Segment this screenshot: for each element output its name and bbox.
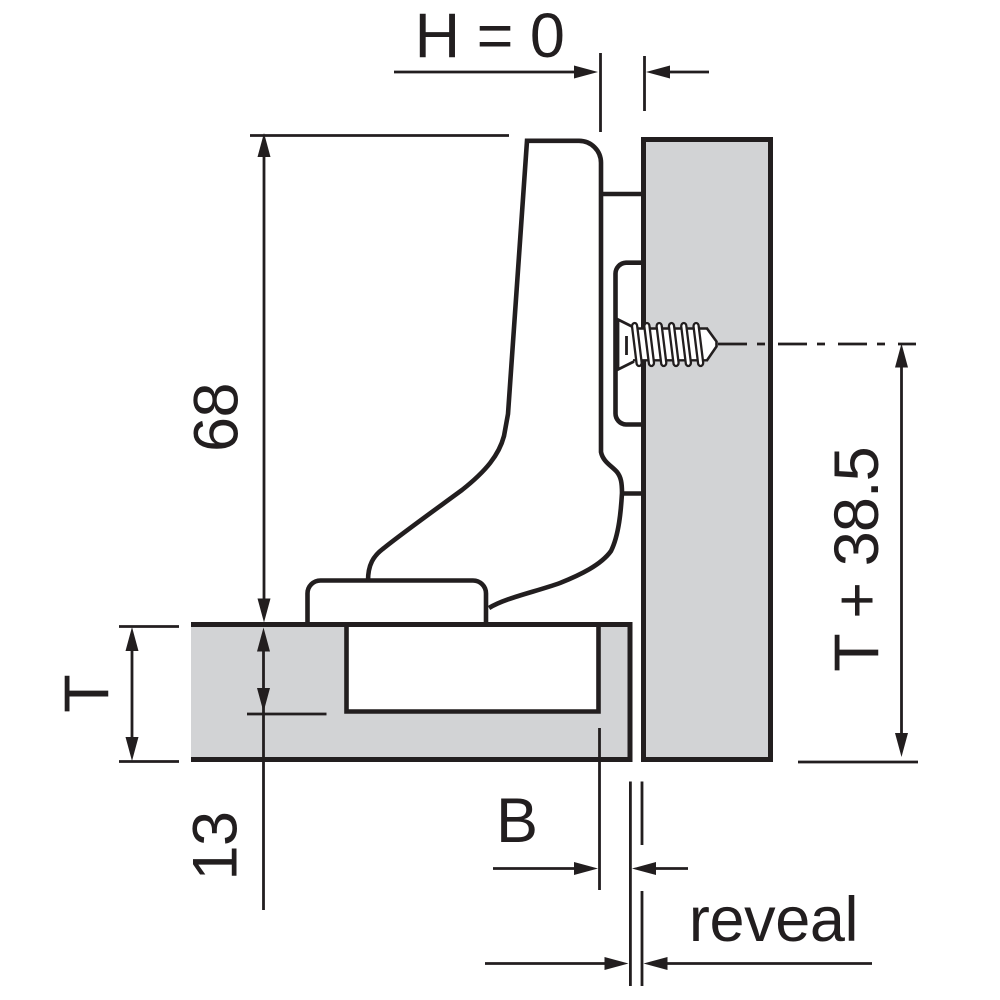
svg-text:B: B [496, 786, 538, 856]
svg-text:T + 38.5: T + 38.5 [822, 447, 892, 672]
svg-text:13: 13 [181, 811, 251, 880]
svg-text:68: 68 [182, 383, 252, 452]
svg-text:H = 0: H = 0 [415, 1, 565, 71]
svg-text:reveal: reveal [689, 885, 858, 955]
svg-text:T: T [52, 674, 122, 712]
